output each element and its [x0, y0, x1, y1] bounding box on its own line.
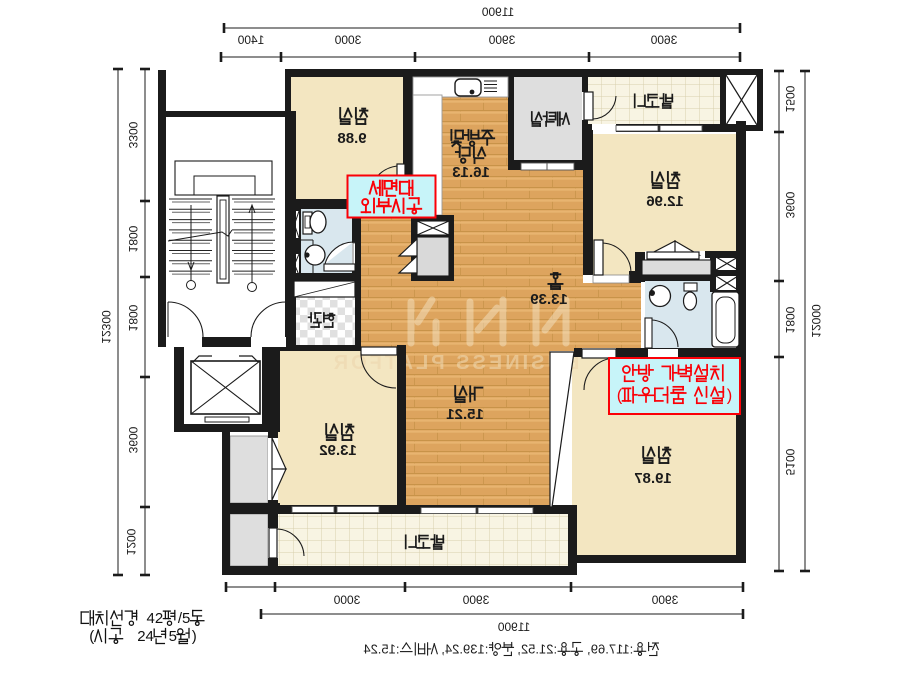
svg-text:1400: 1400: [237, 33, 264, 47]
svg-text:15.21: 15.21: [446, 406, 484, 423]
svg-text:12000: 12000: [809, 304, 823, 338]
svg-text:3000: 3000: [333, 593, 360, 607]
svg-text::139.24,: :139.24,: [441, 641, 488, 656]
svg-text:1800: 1800: [126, 225, 140, 252]
svg-text:3600: 3600: [650, 33, 677, 47]
svg-text:16.13: 16.13: [452, 164, 490, 181]
svg-text:13.39: 13.39: [530, 291, 568, 308]
svg-text:1800: 1800: [126, 304, 140, 331]
svg-text:1200: 1200: [124, 528, 138, 555]
svg-text:3900: 3900: [651, 593, 678, 607]
svg-text:13.92: 13.92: [319, 442, 357, 459]
svg-text:(: (: [617, 387, 623, 405]
svg-text:3000: 3000: [334, 33, 361, 47]
svg-text:11900: 11900: [481, 5, 514, 19]
svg-text::15.24: :15.24: [363, 641, 399, 656]
svg-text:5: 5: [169, 628, 177, 645]
svg-text::21.52,: :21.52,: [517, 641, 557, 656]
svg-text:3900: 3900: [462, 593, 489, 607]
svg-text:12.96: 12.96: [646, 193, 684, 210]
svg-text:5100: 5100: [783, 448, 797, 475]
svg-text:42: 42: [147, 610, 164, 627]
svg-text:(: (: [89, 628, 94, 645]
svg-text:24: 24: [137, 628, 154, 645]
svg-text::117.69,: :117.69,: [587, 641, 633, 656]
svg-text:19.87: 19.87: [634, 470, 672, 487]
svg-text:1800: 1800: [783, 306, 797, 333]
svg-text:3300: 3300: [126, 121, 140, 148]
svg-text:/5: /5: [178, 610, 191, 627]
svg-text:3900: 3900: [488, 33, 515, 47]
svg-text:12300: 12300: [99, 310, 113, 344]
svg-text:3600: 3600: [126, 426, 140, 453]
svg-text:1500: 1500: [783, 85, 797, 112]
svg-text:11900: 11900: [497, 620, 530, 634]
svg-text:): ): [192, 628, 197, 645]
svg-text:3600: 3600: [783, 191, 797, 218]
svg-text:9.88: 9.88: [337, 130, 366, 147]
svg-text:): ): [727, 387, 733, 405]
